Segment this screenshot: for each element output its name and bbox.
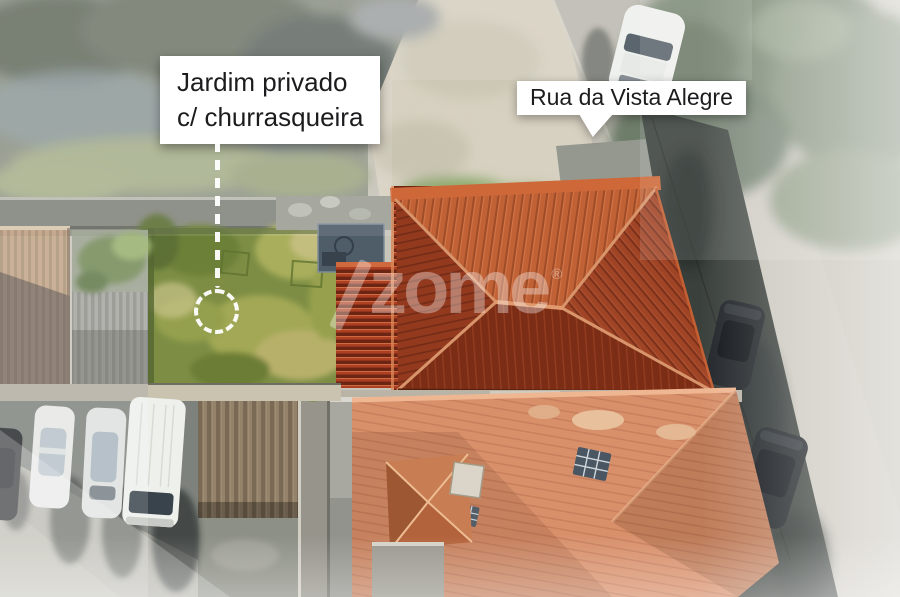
garden-leader-dotted-line xyxy=(215,142,220,288)
garden-label: Jardim privado c/ churrasqueira xyxy=(160,56,380,144)
watermark-logo: zome ® xyxy=(344,256,562,332)
garden-label-line1: Jardim privado xyxy=(177,65,363,100)
street-label: Rua da Vista Alegre xyxy=(517,81,746,115)
garden-label-line2: c/ churrasqueira xyxy=(177,100,363,135)
registered-trademark-icon: ® xyxy=(551,266,562,283)
street-label-pointer-icon xyxy=(576,114,613,137)
street-label-text: Rua da Vista Alegre xyxy=(517,81,746,115)
aerial-property-photo: Jardim privado c/ churrasqueira Rua da V… xyxy=(0,0,900,597)
garden-walkway xyxy=(148,384,341,401)
watermark-text: zome xyxy=(369,256,547,320)
garden-highlight xyxy=(135,214,346,388)
barbecue-dotted-circle-marker xyxy=(194,289,239,334)
chimney-box xyxy=(450,462,484,498)
